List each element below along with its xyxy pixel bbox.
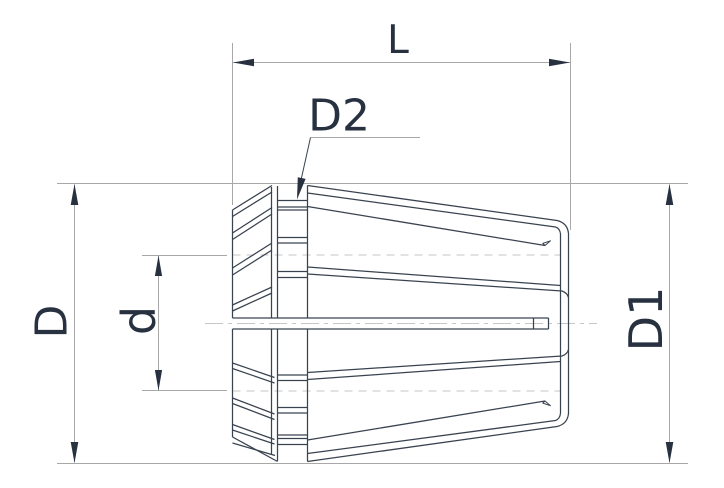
nose-slit — [233, 214, 273, 240]
body-slit — [308, 274, 569, 298]
hidden-lines — [205, 255, 597, 391]
collet-groove — [278, 201, 308, 445]
body-slit — [308, 350, 569, 373]
body-slit — [308, 207, 546, 246]
dim-arrow-down-icon — [71, 442, 79, 463]
body-slit-tip — [543, 401, 551, 406]
nose-slit — [233, 208, 273, 234]
dim-arrow-up-icon — [155, 256, 162, 277]
leader-arrow-icon — [297, 177, 306, 199]
dim-arrow-down-icon — [155, 370, 162, 391]
dimension-labels: L D2 D d D1 — [27, 18, 674, 351]
label-body-D1: D1 — [619, 287, 673, 352]
label-front-D: D — [27, 305, 78, 339]
label-groove-D2: D2 — [308, 91, 370, 142]
dimension-arrows — [71, 59, 674, 463]
helper-lines — [57, 43, 688, 464]
body-slit — [308, 401, 546, 440]
dim-arrow-right-icon — [549, 59, 570, 67]
label-bore-d: d — [112, 306, 166, 335]
body-slit-tip — [543, 241, 551, 246]
technical-drawing-canvas: L D2 D d D1 — [0, 0, 724, 488]
dim-arrow-up-icon — [666, 184, 674, 205]
collet-outline — [233, 138, 569, 462]
dim-arrow-left-icon — [233, 59, 254, 67]
dim-arrow-down-icon — [666, 442, 674, 463]
nose-slit — [233, 250, 273, 275]
technical-drawing-page: L D2 D d D1 — [0, 0, 724, 488]
label-length-L: L — [387, 18, 409, 63]
dim-arrow-up-icon — [71, 184, 79, 205]
